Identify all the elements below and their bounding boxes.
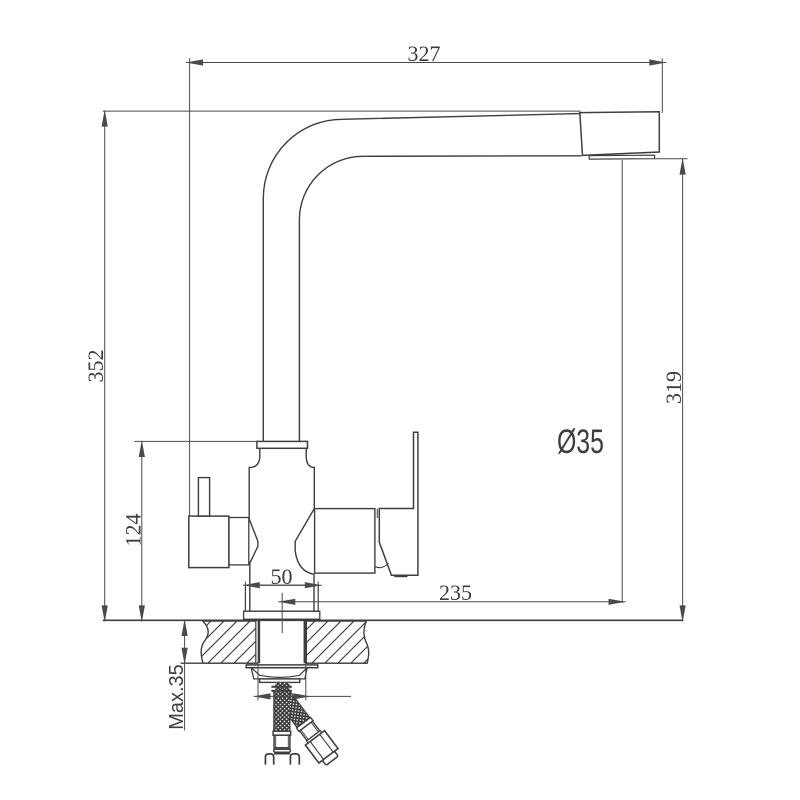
svg-text:Ø35: Ø35 [557, 423, 604, 461]
svg-text:327: 327 [408, 41, 441, 66]
svg-text:Max.35: Max.35 [166, 664, 188, 730]
svg-text:319: 319 [661, 371, 686, 404]
svg-text:352: 352 [83, 350, 108, 383]
svg-text:124: 124 [121, 514, 146, 547]
svg-text:235: 235 [439, 580, 472, 605]
svg-text:50: 50 [271, 564, 293, 589]
